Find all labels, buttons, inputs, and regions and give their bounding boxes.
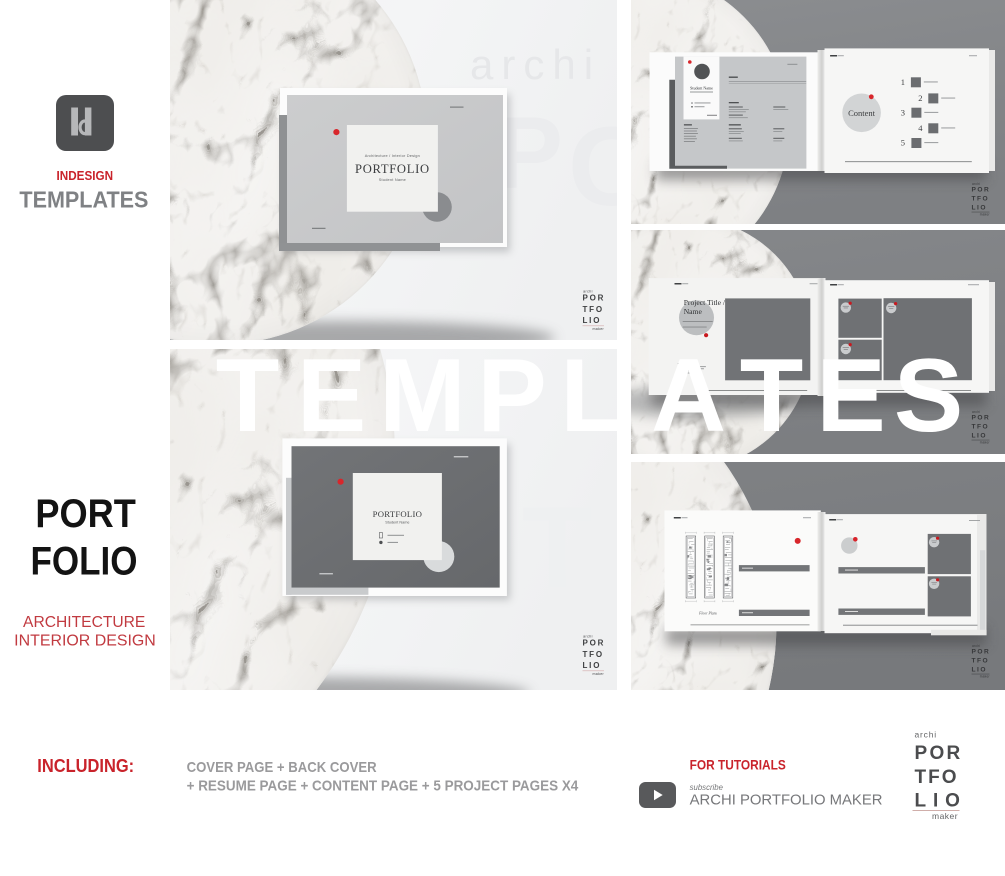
svg-text:T: T — [216, 345, 280, 454]
svg-text:T: T — [522, 484, 592, 612]
svg-text:M: M — [379, 345, 466, 454]
svg-text:POR: POR — [915, 743, 963, 764]
svg-text:3: 3 — [901, 108, 905, 118]
svg-text:Student Name: Student Name — [379, 177, 406, 182]
svg-text:COVER PAGE + BACK COVER: COVER PAGE + BACK COVER — [187, 759, 377, 776]
svg-text:subscribe: subscribe — [690, 783, 724, 792]
svg-text:O: O — [568, 104, 617, 229]
svg-text:PORT: PORT — [35, 492, 136, 536]
svg-text:Floor Plans: Floor Plans — [698, 612, 717, 616]
svg-text:Project Title /: Project Title / — [684, 298, 726, 307]
svg-text:A: A — [651, 345, 726, 454]
svg-text:+ RESUME PAGE + CONTENT PAGE +: + RESUME PAGE + CONTENT PAGE + 5 PROJECT… — [187, 778, 579, 795]
svg-text:maker: maker — [932, 811, 958, 821]
svg-text:T: T — [740, 345, 804, 454]
svg-text:Name: Name — [684, 307, 703, 316]
svg-text:P: P — [477, 345, 546, 454]
svg-text:ARCHI PORTFOLIO MAKER: ARCHI PORTFOLIO MAKER — [690, 793, 883, 809]
svg-text:Content: Content — [848, 108, 876, 118]
svg-text:L: L — [560, 345, 624, 454]
svg-text:TEMPLATES: TEMPLATES — [19, 187, 148, 213]
svg-text:INCLUDING:: INCLUDING: — [37, 755, 134, 776]
svg-text:E: E — [297, 345, 366, 454]
svg-text:PORTFOLIO: PORTFOLIO — [373, 509, 423, 519]
svg-text:LIO: LIO — [915, 791, 967, 812]
svg-text:ARCHITECTURE: ARCHITECTURE — [23, 614, 145, 631]
svg-text:INDESIGN: INDESIGN — [57, 168, 114, 183]
svg-text:archi: archi — [915, 730, 937, 740]
svg-text:TFO: TFO — [915, 767, 959, 788]
svg-text:PORTFOLIO: PORTFOLIO — [355, 162, 430, 176]
svg-text:INTERIOR DESIGN: INTERIOR DESIGN — [14, 632, 156, 649]
svg-text:S: S — [894, 345, 963, 454]
svg-text:FOR TUTORIALS: FOR TUTORIALS — [690, 757, 786, 773]
svg-text:Student Name: Student Name — [690, 86, 713, 91]
svg-text:2: 2 — [918, 93, 922, 103]
svg-text:Architecture / Interior Design: Architecture / Interior Design — [365, 153, 420, 158]
svg-text:E: E — [816, 345, 885, 454]
svg-text:1: 1 — [901, 77, 905, 87]
svg-text:5: 5 — [901, 138, 905, 148]
svg-text:Student Name: Student Name — [385, 521, 409, 525]
svg-text:archi: archi — [470, 41, 601, 88]
svg-text:FOLIO: FOLIO — [31, 540, 138, 584]
